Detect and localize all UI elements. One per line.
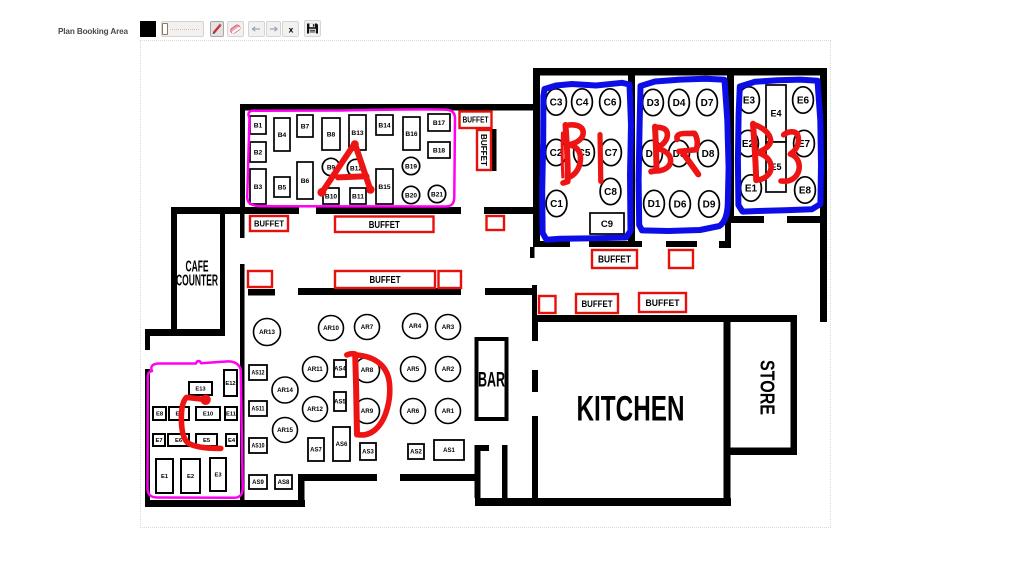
- svg-text:B18: B18: [433, 147, 446, 154]
- svg-text:AS3: AS3: [362, 450, 374, 456]
- svg-text:E6: E6: [797, 96, 810, 107]
- svg-text:E8: E8: [799, 186, 812, 197]
- svg-text:AS11: AS11: [252, 407, 266, 413]
- svg-text:E12: E12: [225, 381, 235, 387]
- svg-text:E10: E10: [203, 412, 213, 418]
- svg-text:E2: E2: [187, 474, 194, 480]
- svg-text:AR2: AR2: [442, 366, 455, 373]
- svg-text:AR12: AR12: [307, 406, 323, 413]
- svg-text:E13: E13: [195, 387, 206, 393]
- svg-text:BAR: BAR: [478, 369, 505, 392]
- svg-text:AR10: AR10: [323, 325, 339, 332]
- svg-text:D7: D7: [701, 98, 714, 109]
- svg-text:AS4: AS4: [334, 367, 346, 373]
- svg-text:E7: E7: [155, 438, 162, 444]
- svg-text:B7: B7: [301, 123, 310, 130]
- svg-text:AS12: AS12: [252, 371, 266, 377]
- svg-text:B21: B21: [431, 191, 443, 198]
- svg-text:E6: E6: [175, 438, 183, 444]
- svg-text:B8: B8: [327, 131, 336, 138]
- svg-text:AR6: AR6: [407, 408, 420, 415]
- svg-text:AR9: AR9: [361, 408, 374, 415]
- svg-text:E8: E8: [156, 412, 164, 418]
- svg-text:AR15: AR15: [277, 427, 293, 434]
- svg-text:B5: B5: [278, 184, 287, 191]
- svg-text:AS10: AS10: [252, 444, 266, 450]
- svg-text:D3: D3: [647, 98, 660, 109]
- svg-text:BUFFET: BUFFET: [254, 219, 285, 229]
- svg-text:AS7: AS7: [310, 448, 322, 454]
- svg-text:AR3: AR3: [442, 324, 455, 331]
- svg-text:STORE: STORE: [756, 360, 778, 415]
- svg-text:AS1: AS1: [443, 448, 455, 454]
- svg-text:KITCHEN: KITCHEN: [577, 390, 685, 429]
- svg-text:AR1: AR1: [442, 408, 455, 415]
- svg-text:AR14: AR14: [277, 387, 293, 394]
- svg-text:C9: C9: [601, 219, 613, 230]
- svg-text:AR7: AR7: [361, 324, 374, 331]
- svg-text:E1: E1: [161, 474, 169, 480]
- svg-text:BUFFET: BUFFET: [598, 255, 631, 266]
- svg-text:AR4: AR4: [409, 323, 422, 330]
- svg-text:B14: B14: [378, 122, 391, 129]
- svg-text:E1: E1: [745, 184, 758, 195]
- svg-text:BUFFET: BUFFET: [370, 275, 401, 286]
- svg-text:E11: E11: [226, 412, 237, 418]
- svg-text:B16: B16: [405, 131, 418, 138]
- svg-text:E4: E4: [770, 109, 781, 119]
- svg-text:AR13: AR13: [259, 329, 275, 336]
- svg-text:AS6: AS6: [336, 442, 348, 448]
- svg-text:AS9: AS9: [252, 480, 264, 486]
- svg-text:B17: B17: [433, 120, 446, 127]
- svg-text:C4: C4: [576, 98, 589, 109]
- svg-text:B6: B6: [301, 178, 310, 185]
- svg-text:E3: E3: [214, 473, 222, 479]
- svg-text:AS5: AS5: [334, 400, 346, 406]
- svg-text:D9: D9: [703, 200, 716, 211]
- svg-text:D6: D6: [674, 200, 687, 211]
- svg-text:E5: E5: [203, 438, 211, 444]
- svg-text:D1: D1: [648, 199, 661, 210]
- svg-text:COUNTER: COUNTER: [176, 273, 218, 290]
- svg-text:C8: C8: [604, 187, 617, 198]
- svg-text:C6: C6: [604, 98, 617, 109]
- svg-text:E4: E4: [228, 438, 236, 444]
- svg-text:AS8: AS8: [278, 480, 290, 486]
- svg-text:BUFFET: BUFFET: [369, 220, 400, 231]
- svg-text:B15: B15: [378, 184, 391, 191]
- svg-text:E3: E3: [743, 96, 756, 107]
- svg-text:AR11: AR11: [307, 366, 323, 373]
- svg-text:B3: B3: [254, 184, 263, 191]
- svg-text:B13: B13: [351, 130, 364, 137]
- svg-text:BUFFET: BUFFET: [646, 298, 680, 309]
- svg-text:B20: B20: [405, 192, 417, 199]
- svg-text:C1: C1: [550, 199, 563, 210]
- svg-text:BUFFET: BUFFET: [463, 116, 489, 125]
- svg-text:AR5: AR5: [407, 366, 420, 373]
- svg-text:B2: B2: [254, 149, 263, 156]
- svg-text:C7: C7: [605, 148, 618, 159]
- svg-text:B10: B10: [325, 193, 338, 200]
- svg-text:D8: D8: [702, 149, 715, 160]
- svg-text:B4: B4: [278, 132, 287, 139]
- svg-text:BUFFET: BUFFET: [582, 299, 613, 310]
- svg-text:D4: D4: [673, 98, 686, 109]
- svg-text:AS2: AS2: [410, 450, 422, 456]
- svg-text:BUFFET: BUFFET: [479, 134, 488, 166]
- svg-text:B1: B1: [254, 122, 263, 129]
- svg-text:AR8: AR8: [361, 367, 374, 374]
- svg-text:B19: B19: [405, 163, 417, 170]
- svg-text:C3: C3: [550, 98, 563, 109]
- svg-text:B11: B11: [352, 193, 364, 200]
